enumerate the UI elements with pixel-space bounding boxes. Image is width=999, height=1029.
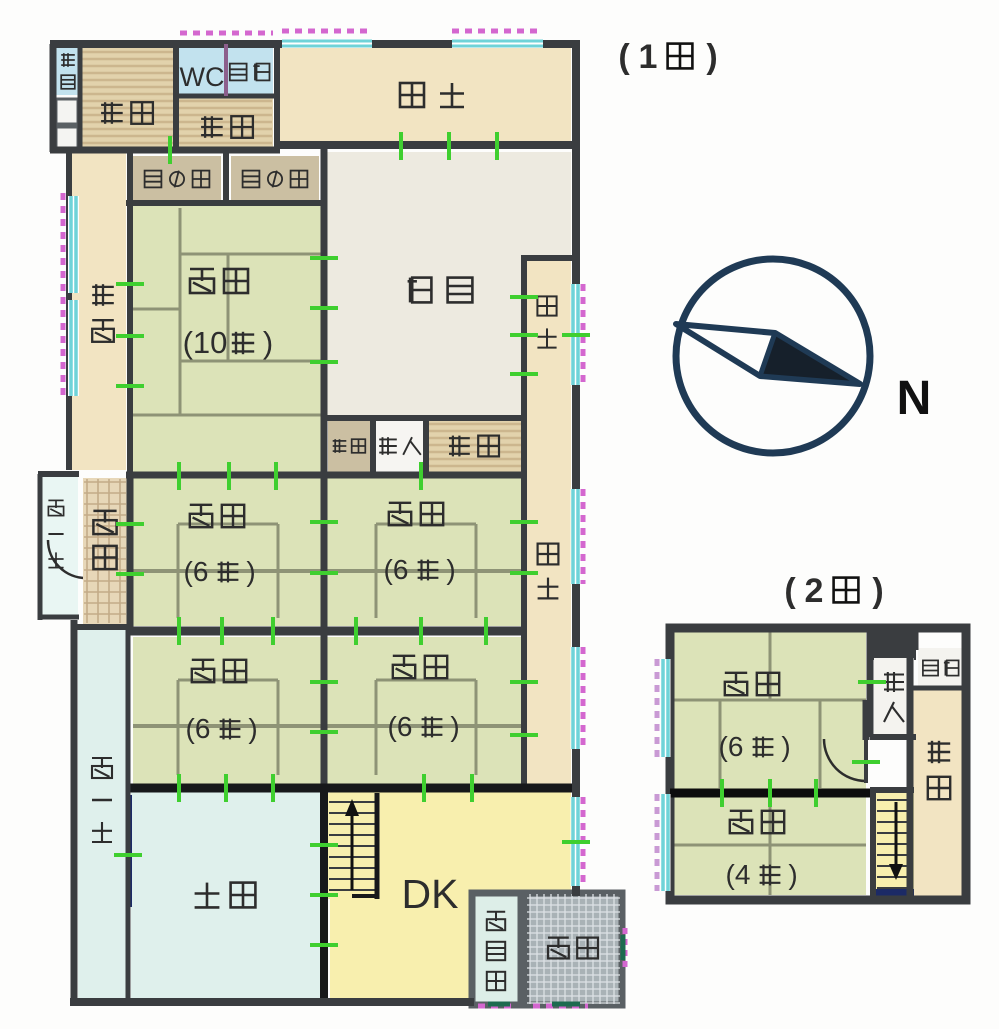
svg-text:): ): [263, 325, 273, 360]
svg-text:): ): [706, 38, 717, 76]
svg-text:(: (: [784, 572, 796, 610]
svg-text:(6: (6: [719, 731, 744, 762]
svg-text:(6: (6: [184, 556, 209, 587]
svg-text:2: 2: [805, 572, 824, 610]
svg-text:(6: (6: [186, 713, 211, 744]
svg-text:): ): [872, 572, 883, 610]
svg-text:): ): [781, 731, 790, 762]
svg-text:): ): [446, 554, 455, 585]
svg-text:(6: (6: [388, 711, 413, 742]
svg-text:(10: (10: [183, 325, 228, 360]
svg-text:): ): [246, 556, 255, 587]
svg-text:N: N: [897, 372, 932, 425]
svg-text:): ): [248, 713, 257, 744]
svg-text:(: (: [618, 38, 630, 76]
svg-text:(6: (6: [384, 554, 409, 585]
svg-text:WC: WC: [180, 62, 225, 92]
svg-text:): ): [450, 711, 459, 742]
svg-text:DK: DK: [402, 871, 459, 917]
svg-text:(4: (4: [726, 859, 751, 890]
svg-text:1: 1: [639, 38, 658, 76]
svg-text:): ): [788, 859, 797, 890]
